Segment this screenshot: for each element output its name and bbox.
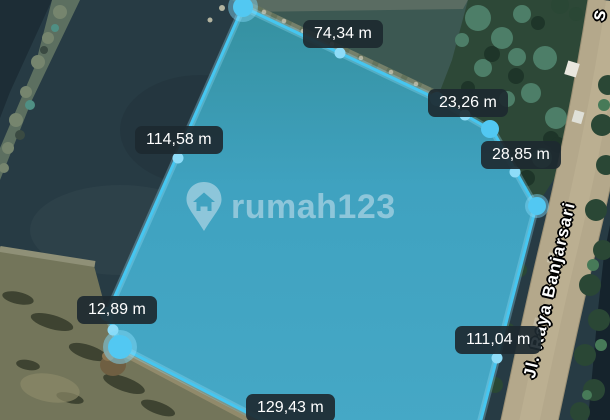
measurement-label-upper-right: 23,26 m	[428, 89, 508, 117]
measurement-label-bottom: 129,43 m	[246, 394, 335, 420]
vertex-handle[interactable]	[108, 335, 132, 359]
measurement-label-left: 114,58 m	[135, 126, 223, 154]
midpoint-handle[interactable]	[335, 48, 346, 59]
vertex-handle[interactable]	[481, 120, 499, 138]
terrain-layer	[0, 0, 610, 420]
measurement-label-right: 28,85 m	[481, 141, 561, 169]
measurement-label-lower-left: 12,89 m	[77, 296, 157, 324]
midpoint-handle[interactable]	[173, 153, 184, 164]
midpoint-handle[interactable]	[492, 353, 503, 364]
measurement-label-lower-right: 111,04 m	[455, 326, 541, 354]
measurement-label-top: 74,34 m	[303, 20, 383, 48]
vertex-handle[interactable]	[528, 197, 546, 215]
satellite-map-view: rumah123 Jl. Raya Banjarsari s 74,34 m 2…	[0, 0, 610, 420]
